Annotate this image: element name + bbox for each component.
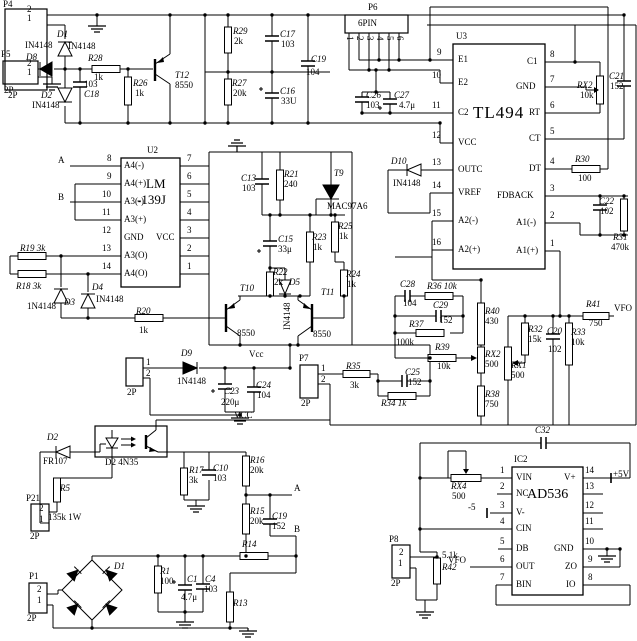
u3-pin-num: 14 [432,181,441,190]
rx2b-val: 500 [485,360,499,369]
r27-ref: R27 [232,79,247,88]
u2-pin-num: 11 [102,208,111,217]
r41-ref: R41 [586,300,601,309]
ic2-pin-num: 3 [500,501,505,510]
p5-pin: 1 [27,68,32,77]
c23-val: 220μ [221,398,239,407]
d3-ref: D3 [64,298,75,307]
r27-val: 20k [233,89,247,98]
r1-val: 100 [160,577,174,586]
d2-ref: D2 [41,91,52,100]
ic2-pin-num: 14 [585,466,594,475]
r23-ref: R23 [312,233,327,242]
ic2-pin-num: 6 [500,555,505,564]
c18-ref: C18 [84,90,99,99]
c24-ref: C24 [256,381,271,390]
ic2-pin-num: 5 [500,537,505,546]
r41-val: 750 [589,319,603,328]
r22-ref: R22 [273,268,288,277]
ic2-pin-label: CIN [516,524,532,533]
c19a-ref: C19 [311,55,326,64]
r32-val: 15k [528,335,542,344]
u3-pin-num: 8 [550,50,555,59]
p4-pin: 1 [27,14,32,23]
ic2-pin-label: GND [554,544,574,553]
u2-pin-num: 10 [102,190,111,199]
p8-pin: 1 [398,559,403,568]
r20-ref: R20 [136,307,151,316]
p21-ref: P21 [26,494,40,503]
p8-type: 2P [391,579,401,588]
r24-ref: R24 [346,270,361,279]
rx4-ref: RX4 [451,482,467,491]
u2-pin-num: 5 [187,190,192,199]
c29-val: 152 [439,316,453,325]
c28-ref: C28 [400,280,415,289]
rx1-ref: RX1 [511,361,527,370]
u3-pin-num: 3 [550,184,555,193]
r38-val: 750 [485,400,499,409]
u3-pin-label: CT [529,134,541,143]
d4-ref: D4 [92,283,103,292]
c26-val: 103 [366,101,380,110]
r42-ref: R42 [442,563,457,572]
r15-ref: R15 [250,507,265,516]
u3-pin-label: GND [516,82,536,91]
wires-bottom [47,556,296,628]
t12-val: 8550 [175,81,193,90]
ic2-pin-num: 13 [585,482,594,491]
u3-pin-label: DT [529,164,541,173]
d8-val: IN4148 [25,41,53,50]
c10-val: 103 [213,474,227,483]
t10-ref: T10 [240,284,254,293]
t12-ref: T12 [175,71,189,80]
ic2-pin-num: 9 [588,555,593,564]
ic2-pin-label: BIN [516,580,532,589]
d2opto-label: D2 4N35 [105,458,138,467]
u3-pin-label: OUTC [458,165,483,174]
schematic-canvas: U2 LM -139J U3 TL494 IC2 AD536 9 10 11 1… [0,0,637,641]
p5-ref: P5 [1,50,11,59]
p1-ref: P1 [29,572,39,581]
c25-val: 152 [408,378,422,387]
r20-val: 1k [139,326,148,335]
p7-box [300,365,318,398]
r14-ref: R14 [242,540,257,549]
u3-pin-num: 9 [437,48,442,57]
r17-val: 3k [189,476,198,485]
d8-ref: D8 [26,53,37,62]
c21-ref: C21 [609,72,624,81]
t9-ref: T9 [334,169,344,178]
c13-ref: C13 [241,174,256,183]
ic2-pin-label: IO [566,580,576,589]
r24-val: 1k [347,280,356,289]
ic2-ref: IC2 [514,455,528,464]
u2-pin-num: 13 [102,244,111,253]
d2fr-val: FR107 [43,457,68,466]
u3-pin-label: E2 [458,78,468,87]
d1-bridge-ref: D1 [114,562,125,571]
net-neg5: -5 [468,503,476,512]
u2-pin-num: 4 [187,208,192,217]
p6-type: 6PIN [358,19,377,28]
p4-ref: P4 [3,0,13,9]
c17-val: 103 [281,40,295,49]
net-vcc: VCC [234,411,253,420]
u2-pin-num: 7 [187,154,192,163]
px-pin: 1 [146,358,151,367]
px-pin: 2 [146,369,151,378]
ic2-pin-label: ZO [565,562,577,571]
c22-val: 102 [600,207,614,216]
d5-ref: D5 [289,278,300,287]
r40-ref: R40 [485,307,500,316]
u2-pin-num: 6 [187,172,192,181]
u3-pin-label: RT [529,108,540,117]
d5-val: IN4148 [283,303,292,331]
c15-ref: C15 [278,235,293,244]
r32-ref: R32 [528,325,543,334]
r22-val: 2k [274,278,283,287]
px-box [126,358,143,386]
ic2-pin-num: 1 [500,466,505,475]
r30-val: 100 [578,174,592,183]
u2-pin-num: 14 [102,262,111,271]
d2-val: IN4148 [32,101,60,110]
c19a-val: 104 [306,68,320,77]
u2-pin-num: 2 [187,244,192,253]
u2-pin-num: 8 [107,154,112,163]
c17-ref: C17 [280,30,295,39]
d10-val: IN4148 [393,179,421,188]
rx2b-ref: RX2 [485,350,501,359]
p6-pin: 6 [395,36,404,41]
r15-val: 20k [250,517,264,526]
d9-val: 1N4148 [177,377,206,386]
ic2-pin-label: V+ [564,473,576,482]
ic2-pin-num: 11 [585,517,594,526]
u3-pin-num: 5 [550,127,555,136]
u3-pin-num: 15 [432,209,441,218]
u2-pin-label: A4(+) [124,179,146,188]
ic2-pin-label: DB [516,544,529,553]
p21-type: 2P [30,532,40,541]
c32-ref: C32 [535,426,550,435]
d4-val: IN4148 [96,295,124,304]
net-b-label-2: B [294,525,300,534]
r25-val: 1k [339,232,348,241]
u2-pin-label: A3(-) [124,197,144,206]
c23-ref: C23 [224,387,239,396]
d3-val: 1N4148 [27,302,56,311]
ic2-pin-label: VIN [516,473,532,482]
ic2-pin-label: NC [516,489,529,498]
r23-val: 1k [313,243,322,252]
u2-pin-label: A3(+) [124,215,146,224]
u3-pin-num: 13 [432,158,441,167]
c13-val: 103 [242,184,256,193]
c29-ref: C29 [433,301,448,310]
p7-pin: 2 [321,375,326,384]
c1-val: 4.7μ [181,593,197,602]
c4-val: 103 [204,585,218,594]
u2-pin-num: 12 [102,226,111,235]
r18-label: R18 3k [16,282,41,291]
p7-pin: 1 [321,364,326,373]
u2-pin-label: A4(-) [124,161,144,170]
p1-type: 2P [27,614,37,623]
c27-val: 4.7μ [399,101,415,110]
u3-pin-num: 2 [550,211,555,220]
u2-pin-label: GND [124,233,144,242]
r26-ref: R26 [133,79,148,88]
r33-ref: R33 [571,328,586,337]
u3-pin-label: A2(-) [458,216,478,225]
c19b-ref: C19 [272,512,287,521]
u3-pin-label: A2(+) [458,245,480,254]
u3-pin-num: 6 [550,101,555,110]
r37-val: 100k [396,338,414,347]
u3-pin-num: 4 [550,157,555,166]
rx4-val: 500 [452,492,466,501]
p6-pin: 4 [375,36,384,41]
u3-ref: U3 [456,32,467,41]
u2-pin-label: A4(O) [124,269,148,278]
u3-pin-label: FDBACK [497,191,534,200]
r19-label: R19 3k [20,244,45,253]
ic2-pin-num: 7 [500,573,505,582]
r33-val: 10k [571,338,585,347]
p5-type: 2P [4,86,14,95]
wires-opto [40,420,330,573]
r31-val: 470k [611,243,629,252]
r36-label: R36 10k [427,282,457,291]
d10-ref: D10 [391,157,407,166]
c26-ref: C26 [366,91,381,100]
p6-pin: 3 [365,36,374,41]
r5-ref: R5 [60,484,70,493]
ic2-pin-label: OUT [516,562,535,571]
c22-ref: C22 [599,197,614,206]
u2-pin-num: 1 [187,262,192,271]
ic2-pin-label: V- [516,508,525,517]
c4-ref: C4 [205,575,216,584]
u3-pin-num: 11 [432,101,441,110]
r21-val: 240 [284,180,298,189]
net-a-label: A [58,156,65,165]
p8-ref: P8 [389,535,399,544]
p6-ref: P6 [368,3,378,12]
c20-val: 102 [548,345,562,354]
rx2a-val: 10k [580,91,594,100]
rx2a-ref: RX2 [577,81,593,90]
d2fr-ref: D2 [47,433,58,442]
ic2-name: AD536 [527,488,568,502]
u3-name: TL494 [473,104,524,121]
p7-ref: P7 [299,354,309,363]
u3-pin-num: 7 [550,75,555,84]
net-b-label: B [58,193,64,202]
r21-ref: R21 [284,170,299,179]
p6-pin: 5 [385,36,394,41]
rx1-val: 500 [511,371,525,380]
r16-val: 20k [250,466,264,475]
u2-pin-label: VCC [156,233,175,242]
c16-val: 33U [281,97,297,106]
r5-val: 135k 1W [48,513,81,522]
d1-ref: D1 [57,30,68,39]
c10-ref: C10 [213,464,228,473]
r17-ref: R17 [189,466,204,475]
p8-pin: 2 [399,548,404,557]
c21-val: 152 [610,82,624,91]
c16-ref: C16 [280,87,295,96]
c19b-val: 152 [272,522,286,531]
r26-val: 1k [135,89,144,98]
r25-ref: R25 [338,222,353,231]
r38-ref: R38 [485,390,500,399]
net-vcc-mid: Vcc [249,350,264,359]
ic2-pin-num: 4 [500,517,505,526]
c18-val: 103 [84,80,98,89]
r29-ref: R29 [233,27,248,36]
u3-pin-label: VCC [458,138,477,147]
r28-ref: R28 [88,54,103,63]
u2-ref: U2 [147,146,158,155]
r39-val: 10k [437,362,451,371]
u2-pin-num: 3 [187,226,192,235]
ic2-pin-num: 12 [585,501,594,510]
t10-val: 8550 [237,329,255,338]
c1-ref: C1 [187,575,198,584]
u3-pin-label: A1(-) [516,218,536,227]
p1-pin: 1 [37,596,42,605]
r40-val: 430 [485,317,499,326]
r1-ref: R1 [160,567,170,576]
ic2-pin-num: 10 [585,537,594,546]
u2-pin-label: A3(O) [124,251,148,260]
r35-val: 3k [350,381,359,390]
p21-pin: 2 [39,504,44,513]
r34-label: R34 1k [381,399,406,408]
r35-ref: R35 [346,362,361,371]
px-type: 2P [127,388,137,397]
t11-val: 8550 [313,330,331,339]
r16-ref: R16 [250,456,265,465]
u3-pin-num: 12 [432,131,441,140]
t11-ref: T11 [321,288,334,297]
c25-ref: C25 [405,368,420,377]
d1-val: IN4148 [68,42,96,51]
net-pos5v: +5V [613,470,629,479]
r31-ref: R31 [613,233,628,242]
net-vfo-1: VFO [614,304,632,313]
c20-ref: C20 [547,327,562,336]
c24-val: 104 [257,391,271,400]
net-a-label-2: A [294,484,301,493]
p6-pin: 1 [345,36,354,41]
r29-val: 2k [234,37,243,46]
r42-val: 5.1k [442,551,458,560]
p6-pin: 2 [355,36,364,41]
p7-type: 2P [301,399,311,408]
ic2-pin-num: 2 [500,482,505,491]
u3-pin-num: 16 [432,238,441,247]
c27-ref: C27 [394,91,409,100]
u3-pin-label: E1 [458,55,468,64]
p21-pin: 1 [39,515,44,524]
wire-segments [10,7,636,628]
d9-ref: D9 [181,349,192,358]
u3-pin-num: 10 [432,71,441,80]
u3-pin-label: C2 [458,108,469,117]
ic2-pin-num: 8 [588,573,593,582]
diode-symbols [40,42,421,615]
p5-box [3,61,38,84]
u3-pin-label: A1(+) [516,246,538,255]
u3-pin-label: C1 [527,57,538,66]
u3-pin-num: 1 [550,239,555,248]
c15-val: 33μ [278,245,292,254]
r30-ref: R30 [575,155,590,164]
t9-val: MAC97A6 [327,202,368,211]
u3-pin-label: VREF [458,188,481,197]
r37-ref: R37 [409,320,424,329]
u2-pin-num: 9 [107,172,112,181]
r13-ref: R13 [233,599,248,608]
u2-name-line1: LM [146,177,166,190]
r39-ref: R39 [435,343,450,352]
p1-pin: 2 [37,585,42,594]
c28-val: 104 [403,299,417,308]
